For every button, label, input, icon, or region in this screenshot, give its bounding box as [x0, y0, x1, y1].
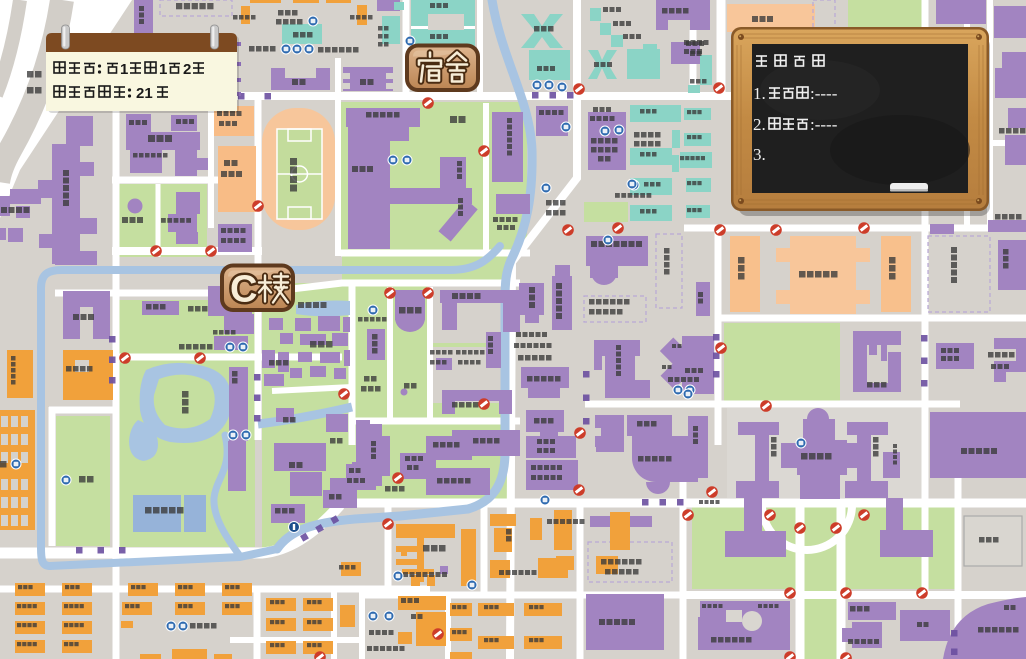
svg-text:1.: 1. — [753, 84, 766, 103]
svg-text:2: 2 — [183, 61, 191, 78]
svg-text:2.: 2. — [753, 115, 766, 134]
svg-text:21: 21 — [136, 85, 153, 102]
svg-text::----: :---- — [810, 84, 838, 103]
svg-text::----: :---- — [810, 115, 838, 134]
svg-text:1: 1 — [120, 61, 128, 78]
svg-text:1: 1 — [159, 61, 167, 78]
svg-text:3.: 3. — [753, 145, 766, 164]
svg-text:C: C — [230, 269, 257, 311]
